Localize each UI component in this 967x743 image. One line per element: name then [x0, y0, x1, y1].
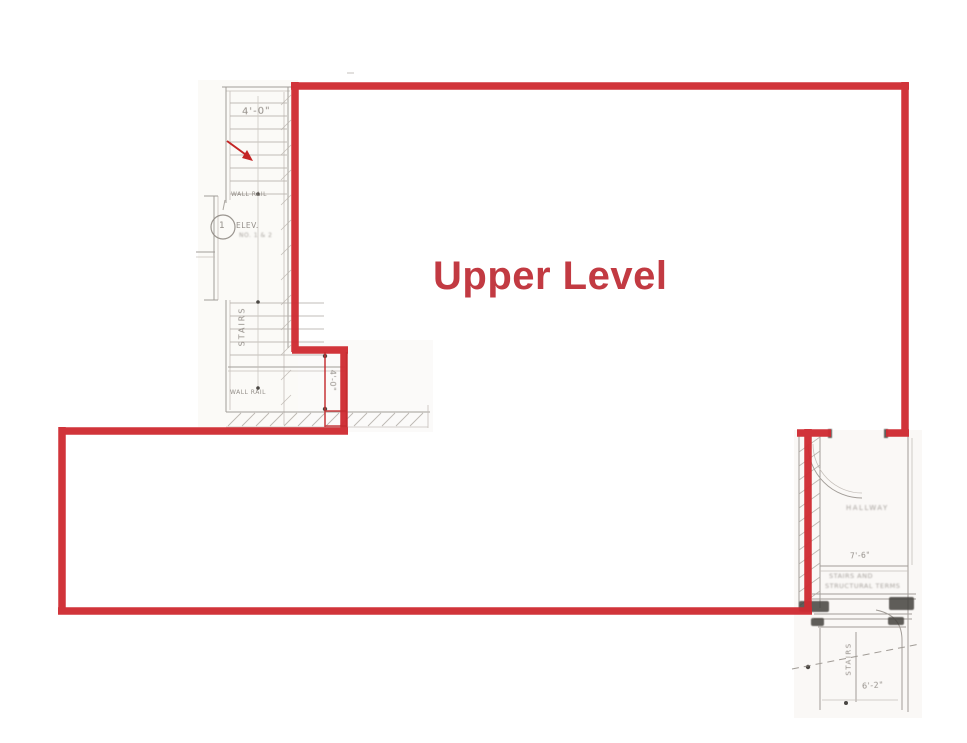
elevator-label: ELEV. — [236, 221, 259, 230]
lower-stairs-label: STAIRS — [845, 642, 853, 675]
step-dimension: 4'-0" — [328, 370, 337, 391]
detail-marker-number: 1 — [219, 221, 225, 231]
red-arrow — [227, 141, 253, 161]
upper-stairs-label: STAIRS — [237, 307, 246, 347]
lower-wall-rail-label: WALL RAIL — [230, 389, 266, 396]
structural-note-line2: STRUCTURAL TERMS — [825, 582, 900, 590]
red-outline-annotation — [0, 0, 967, 743]
lower-stair-dimension: 6'-2" — [862, 680, 884, 690]
upper-stair-dimension: 4'-0" — [242, 106, 271, 118]
structural-note-line1: STAIRS AND — [829, 572, 873, 580]
upper-level-label: Upper Level — [433, 254, 673, 299]
floorplan-canvas: Upper Level 4'-0" WALL RAIL 1 ELEV. NO. … — [0, 0, 967, 743]
elevator-note: NO. 1 & 2 — [239, 232, 272, 239]
hallway-label: HALLWAY — [846, 504, 889, 512]
upper-wall-rail-label: WALL RAIL — [231, 191, 267, 198]
hallway-dimension: 7'-6" — [850, 550, 871, 560]
upper-level-boundary — [58, 82, 909, 613]
